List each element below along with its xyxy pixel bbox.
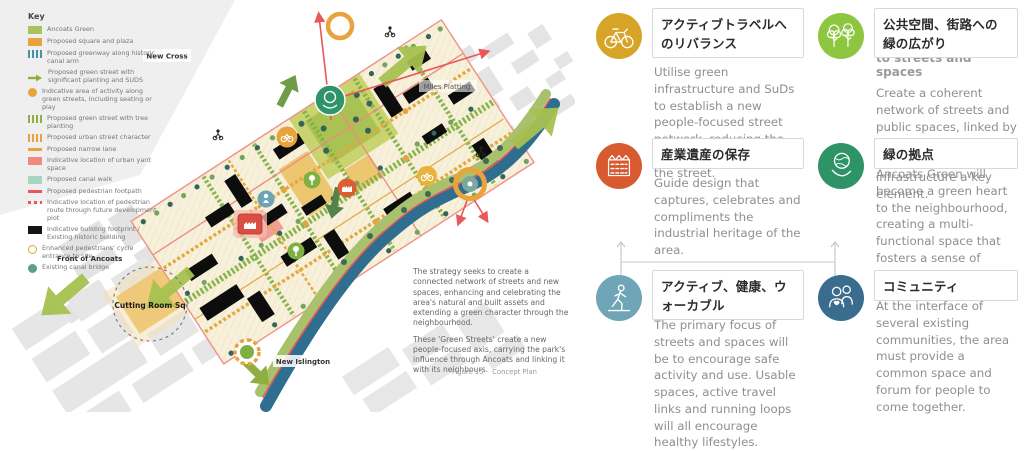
heritage-badge xyxy=(233,210,267,238)
key-swatch-arrow xyxy=(28,68,43,78)
principle-text: 緑の拠点 Ancoats Green will become a green h… xyxy=(874,138,1018,262)
strategy-paragraph-1: The strategy seeks to create a connected… xyxy=(413,267,569,329)
label-cutting-room-sq: Cutting Room Sq xyxy=(114,301,185,310)
key-item: Indicative area of activity along green … xyxy=(28,87,162,111)
principle-title: 公共空間、街路への緑の広がり xyxy=(874,8,1018,58)
map-key-items: Ancoats GreenProposed square and plazaPr… xyxy=(28,25,162,273)
people-community-icon xyxy=(821,278,861,318)
key-swatch-stripes xyxy=(28,115,42,123)
walking-person-icon xyxy=(599,278,639,318)
principle-description: At the interface of several existing com… xyxy=(874,298,1018,415)
trees-icon xyxy=(821,16,861,56)
principle-title: 産業遺産の保存 xyxy=(652,138,804,169)
principle-title: 緑の拠点 xyxy=(874,138,1018,169)
principle-card-active-travel: アクティブトラベルへのリバランス Utilise green infrastru… xyxy=(588,0,810,130)
key-swatch-dot xyxy=(28,88,37,97)
bicycle-icon xyxy=(599,16,639,56)
bike-node xyxy=(417,166,437,186)
key-swatch-ring xyxy=(28,245,37,254)
key-swatch-dot xyxy=(28,264,37,273)
key-swatch-solid xyxy=(28,26,42,34)
strategy-text-block: The strategy seeks to create a connected… xyxy=(413,267,569,382)
principle-icon-circle xyxy=(596,143,642,189)
principle-description: Guide design that captures, celebrates a… xyxy=(652,175,804,259)
principle-icon-circle xyxy=(596,13,642,59)
hand-globe-icon xyxy=(821,146,861,186)
key-item: Indicative location of urban yard space xyxy=(28,156,162,172)
principle-title: コミュニティ xyxy=(874,270,1018,301)
factory-node xyxy=(338,179,357,198)
key-item: Proposed narrow lane xyxy=(28,145,162,153)
key-item: Ancoats Green xyxy=(28,25,162,34)
key-item-label: Existing canal bridge xyxy=(42,263,109,271)
principle-description: The primary focus of streets and spaces … xyxy=(652,317,804,451)
key-item: Proposed pedestrian footpath xyxy=(28,187,162,195)
key-swatch-solid xyxy=(28,226,42,234)
label-new-islington: New Islington xyxy=(276,358,330,366)
principle-text: コミュニティ At the interface of several exist… xyxy=(874,270,1018,412)
north-entrance-ring xyxy=(328,14,352,38)
key-item-label: Indicative location of urban yard space xyxy=(47,156,162,172)
key-swatch-solid xyxy=(28,176,42,184)
key-swatch-line xyxy=(28,148,42,151)
key-item: Proposed square and plaza xyxy=(28,37,162,46)
key-swatch-stripes xyxy=(28,50,42,58)
key-item: Proposed green street with significant p… xyxy=(28,68,162,84)
person-node xyxy=(258,191,275,208)
tree-node xyxy=(304,172,321,189)
key-swatch-line xyxy=(28,190,42,193)
south-entrance-node xyxy=(235,340,259,364)
label-miles-platting: Miles Platting xyxy=(424,83,471,91)
key-item-label: Proposed green street with tree planting xyxy=(47,114,162,130)
key-item-label: Indicative building footprint / Existing… xyxy=(47,225,162,241)
key-item: Enhanced pedestrians' cycle entrance to … xyxy=(28,244,162,260)
key-item-label: Proposed pedestrian footpath xyxy=(47,187,142,195)
principle-icon-circle xyxy=(596,275,642,321)
bike-node xyxy=(277,127,298,148)
concept-plan-page: New Cross Miles Platting Front of Ancoat… xyxy=(0,0,1024,412)
key-item-label: Proposed green street with significant p… xyxy=(48,68,162,84)
key-item-label: Proposed urban street character xyxy=(47,133,151,141)
key-item-label: Proposed square and plaza xyxy=(47,37,133,45)
key-item: Proposed greenway along historic canal a… xyxy=(28,49,162,65)
key-title: Key xyxy=(28,12,162,21)
principles-grid: アクティブトラベルへのリバランス Utilise green infrastru… xyxy=(588,0,1024,412)
principle-card-green-streets: 公共空間、街路への緑の広がり to streets and spaces Cre… xyxy=(810,0,1024,130)
key-item-label: Proposed greenway along historic canal a… xyxy=(47,49,162,65)
key-item-label: Enhanced pedestrians' cycle entrance to … xyxy=(42,244,162,260)
principle-description: Ancoats Green will become a green heart … xyxy=(874,166,1018,283)
key-swatch-stripes xyxy=(28,134,42,142)
principle-text: 産業遺産の保存 Guide design that captures, cele… xyxy=(652,138,804,262)
key-item-label: Ancoats Green xyxy=(47,25,94,33)
key-swatch-solid xyxy=(28,38,42,46)
key-item-label: Indicative area of activity along green … xyxy=(42,87,162,111)
principle-card-active-healthy: アクティブ、健康、ウォーカブル The primary focus of str… xyxy=(588,262,810,412)
tree-node xyxy=(288,243,305,260)
map-key: Key Ancoats GreenProposed square and pla… xyxy=(28,12,162,276)
principle-icon-circle xyxy=(818,13,864,59)
factory-icon xyxy=(599,146,639,186)
principle-title: アクティブ、健康、ウォーカブル xyxy=(652,270,804,320)
key-item: Indicative location of pedestrian route … xyxy=(28,198,162,222)
key-item: Existing canal bridge xyxy=(28,263,162,273)
principle-card-green-heart: 緑の拠点 Ancoats Green will become a green h… xyxy=(810,130,1024,262)
principle-icon-circle xyxy=(818,143,864,189)
key-item-label: Proposed canal walk xyxy=(47,175,112,183)
principle-title: アクティブトラベルへのリバランス xyxy=(652,8,804,58)
key-item: Indicative building footprint / Existing… xyxy=(28,225,162,241)
key-swatch-solid xyxy=(28,157,42,165)
principle-icon-circle xyxy=(818,275,864,321)
key-item-label: Indicative location of pedestrian route … xyxy=(47,198,162,222)
key-item-label: Proposed narrow lane xyxy=(47,145,116,153)
principle-text: 公共空間、街路への緑の広がり to streets and spaces Cre… xyxy=(874,8,1018,130)
principle-card-heritage: 産業遺産の保存 Guide design that captures, cele… xyxy=(588,130,810,262)
key-item: Proposed green street with tree planting xyxy=(28,114,162,130)
key-item: Proposed canal walk xyxy=(28,175,162,184)
key-item: Proposed urban street character xyxy=(28,133,162,142)
key-swatch-dashes xyxy=(28,201,42,204)
ancoats-green-node xyxy=(315,85,345,115)
figure-caption: Figure 15 Concept Plan xyxy=(452,368,537,376)
principle-card-community: コミュニティ At the interface of several exist… xyxy=(810,262,1024,412)
principle-text: アクティブトラベルへのリバランス Utilise green infrastru… xyxy=(652,8,804,130)
principle-text: アクティブ、健康、ウォーカブル The primary focus of str… xyxy=(652,270,804,412)
